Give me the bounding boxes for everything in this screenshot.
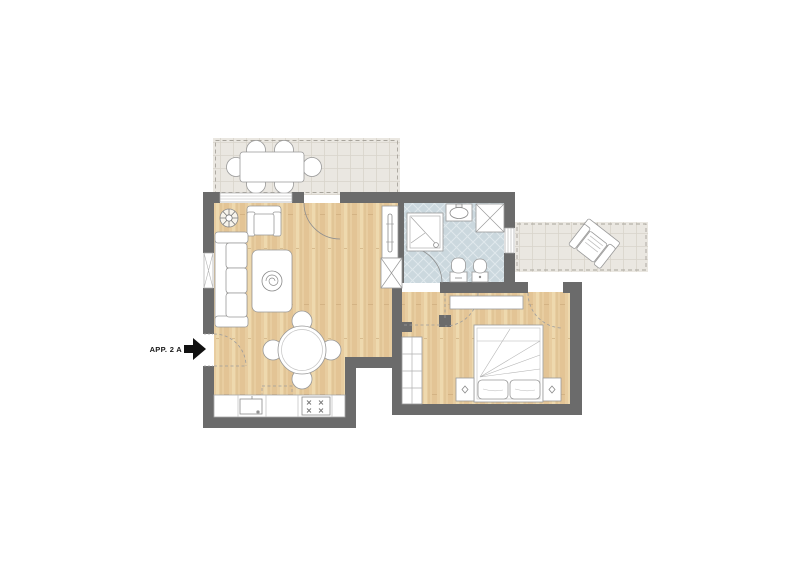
window-bathroom — [505, 228, 514, 253]
double-bed — [474, 325, 543, 402]
dresser — [450, 296, 523, 309]
terrace-right — [515, 218, 648, 272]
washbasin — [446, 204, 472, 221]
pillow — [510, 380, 540, 399]
entry-marker: APP. 2 A — [150, 338, 206, 360]
shower — [407, 213, 443, 251]
coat-rail-icon — [388, 214, 392, 252]
stove — [302, 397, 330, 415]
kitchen-sink — [240, 396, 262, 414]
bathroom-door-threshold — [402, 283, 440, 292]
coffee-table — [252, 250, 292, 312]
entry-opening — [204, 334, 213, 366]
nightstand-right — [543, 378, 561, 401]
nightstand-left — [456, 378, 474, 401]
floor-plan: APP. 2 A — [0, 0, 800, 565]
washing-machine — [476, 204, 504, 232]
pillow — [478, 380, 508, 399]
bedroom-terrace-threshold — [528, 283, 563, 292]
window-left — [204, 253, 213, 288]
terrace-top — [213, 138, 400, 195]
armchair — [247, 206, 281, 236]
kitchen — [214, 395, 345, 417]
potted-plant-icon — [220, 209, 238, 227]
floor-plan-page: APP. 2 A — [0, 0, 800, 565]
outdoor-dining-table — [240, 152, 304, 182]
round-dining-table — [278, 326, 326, 374]
sofa — [215, 232, 248, 327]
entry-arrow-icon — [184, 338, 206, 360]
window-terrace-top — [220, 193, 292, 202]
apartment-label: APP. 2 A — [150, 345, 183, 354]
toilet — [450, 258, 467, 282]
bidet — [472, 259, 488, 282]
outdoor-chair — [303, 158, 322, 177]
wardrobe — [402, 337, 422, 404]
